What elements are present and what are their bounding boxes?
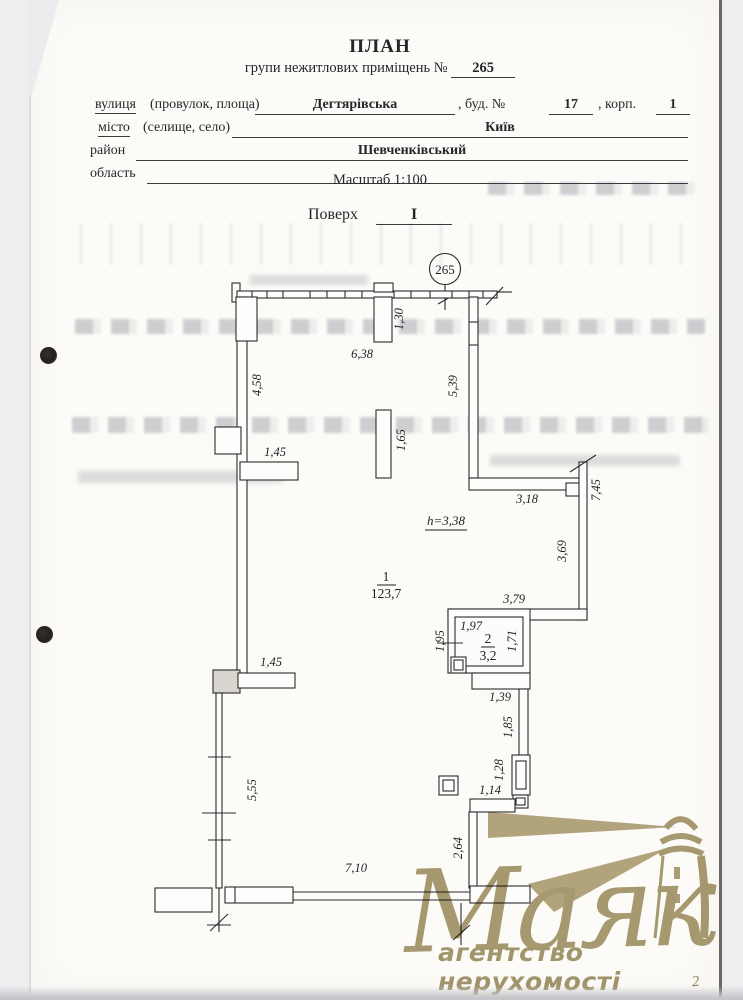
dim-left-lower: 5,55 bbox=[245, 779, 259, 801]
floor-plan-drawing: 265 1,30 6,38 4,58 5,39 1,45 1,65 3,18 7… bbox=[0, 0, 743, 1000]
room2-area: 3,2 bbox=[480, 648, 497, 663]
pillar-center bbox=[376, 410, 391, 478]
east-wall-upper bbox=[469, 297, 596, 620]
dim-right-upper: 5,39 bbox=[446, 374, 460, 397]
dim-partition-lower: 1,45 bbox=[260, 655, 282, 669]
dim-partition-upper: 1,45 bbox=[264, 445, 286, 459]
ceiling-height-label: h=3,38 bbox=[427, 513, 466, 528]
unit-circle-number: 265 bbox=[435, 262, 455, 277]
dim-door-lower: 1,28 bbox=[492, 758, 506, 781]
room1-label: 1 123,7 bbox=[371, 569, 402, 601]
dim-room2-depth: 1,71 bbox=[505, 630, 519, 652]
dim-bottom-width: 7,10 bbox=[345, 861, 368, 875]
dim-right-inner: 3,69 bbox=[555, 539, 569, 563]
scanned-floor-plan-page: ПЛАН групи нежитлових приміщень № 265 ву… bbox=[0, 0, 743, 1000]
dim-ledge-width: 3,79 bbox=[502, 592, 526, 606]
room2-number: 2 bbox=[485, 631, 492, 646]
dim-top-opening: 1,30 bbox=[392, 307, 406, 330]
dim-passage-width: 1,39 bbox=[489, 690, 512, 704]
binder-hole bbox=[40, 347, 57, 364]
room1-number: 1 bbox=[383, 569, 390, 584]
room1-area: 123,7 bbox=[371, 586, 402, 601]
dim-room2-door: 1,95 bbox=[433, 630, 447, 652]
dim-left-upper: 4,58 bbox=[250, 373, 264, 396]
pillar-entry bbox=[374, 297, 392, 342]
dim-room2-width: 1,97 bbox=[460, 619, 483, 633]
scan-edge-shadow bbox=[0, 986, 743, 1000]
dim-wall-lower: 2,64 bbox=[451, 837, 465, 859]
dim-pillar-center: 1,65 bbox=[394, 429, 408, 451]
west-wall bbox=[213, 297, 298, 693]
dim-right-outer: 7,45 bbox=[589, 479, 603, 501]
dim-niche-width: 1,14 bbox=[479, 783, 501, 797]
binder-hole bbox=[36, 626, 53, 643]
dim-top-width: 6,38 bbox=[351, 347, 374, 361]
dim-passage-depth: 1,85 bbox=[501, 716, 515, 738]
dim-step-width: 3,18 bbox=[515, 492, 539, 506]
